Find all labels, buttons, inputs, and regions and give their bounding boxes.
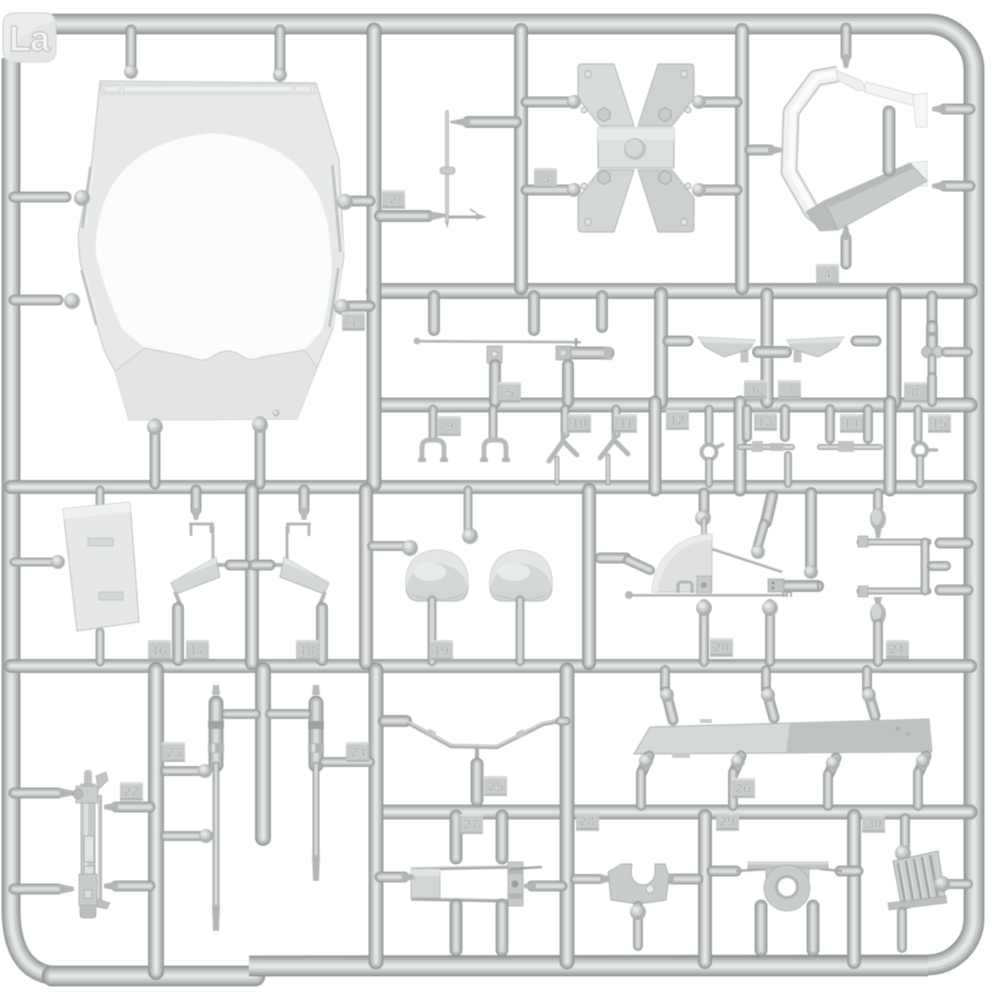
svg-text:2: 2 (389, 191, 397, 207)
svg-text:11: 11 (619, 415, 634, 431)
svg-text:26: 26 (735, 780, 751, 796)
svg-text:12: 12 (669, 412, 685, 428)
svg-text:8: 8 (911, 384, 919, 400)
svg-text:14: 14 (843, 415, 859, 431)
svg-text:21: 21 (889, 641, 905, 657)
svg-text:9: 9 (446, 418, 454, 434)
svg-text:22: 22 (123, 783, 139, 799)
svg-text:19: 19 (433, 642, 449, 658)
svg-text:5: 5 (506, 384, 514, 400)
svg-text:20: 20 (713, 639, 729, 655)
svg-text:18: 18 (299, 642, 315, 658)
svg-text:6: 6 (752, 381, 760, 397)
svg-text:3: 3 (542, 170, 550, 186)
svg-text:17: 17 (189, 642, 205, 658)
svg-text:24: 24 (350, 744, 366, 760)
svg-text:23: 23 (166, 744, 182, 760)
svg-text:15: 15 (931, 415, 947, 431)
svg-text:La: La (9, 18, 51, 59)
svg-text:10: 10 (571, 415, 587, 431)
svg-text:7: 7 (786, 381, 794, 397)
svg-text:1: 1 (350, 313, 358, 329)
svg-text:4: 4 (823, 266, 831, 282)
svg-text:16: 16 (151, 642, 167, 658)
svg-text:27: 27 (463, 816, 479, 832)
svg-text:13: 13 (757, 413, 773, 429)
svg-text:30: 30 (866, 815, 882, 831)
svg-text:25: 25 (488, 778, 504, 794)
svg-text:29: 29 (719, 813, 735, 829)
svg-text:28: 28 (579, 813, 595, 829)
